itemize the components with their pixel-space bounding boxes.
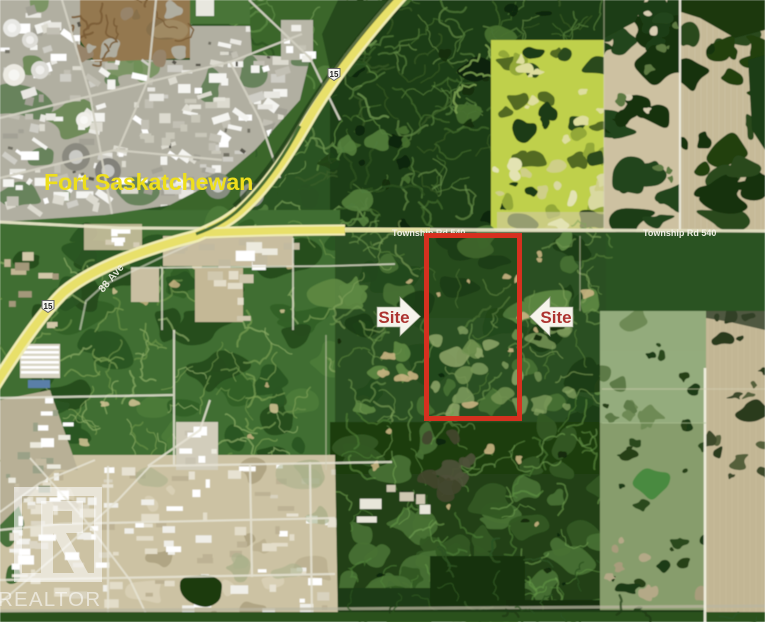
svg-text:15: 15 [44, 302, 53, 311]
svg-text:Site: Site [540, 308, 571, 327]
svg-text:REALTOR: REALTOR [0, 588, 101, 611]
svg-text:Fort Saskatchewan: Fort Saskatchewan [44, 169, 253, 195]
svg-text:15: 15 [330, 70, 339, 79]
svg-text:Township Rd 540: Township Rd 540 [643, 228, 716, 238]
svg-text:Site: Site [378, 308, 409, 327]
